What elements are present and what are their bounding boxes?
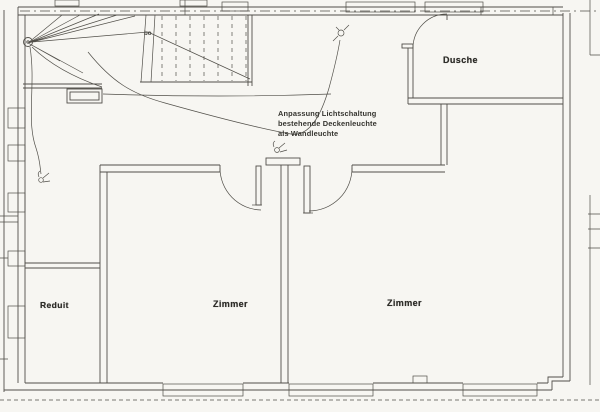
door-zimmer-left xyxy=(220,166,262,210)
stair-right-wall xyxy=(248,15,252,86)
wire-hall xyxy=(103,94,331,96)
stair-label: bo xyxy=(144,30,152,37)
chimney xyxy=(413,376,427,383)
wire-to-wall-switch xyxy=(30,47,41,174)
ceiling-light-icon xyxy=(333,25,349,41)
annotation-line-3: als Wandleuchte xyxy=(278,129,338,138)
stair-walk-line xyxy=(32,32,250,79)
wall-light-icon xyxy=(273,141,287,152)
annotation-line-2: bestehende Deckenleuchte xyxy=(278,119,377,128)
bottom-wall-windows xyxy=(163,376,537,396)
annotation-line-1: Anpassung Lichtschaltung xyxy=(278,109,377,118)
stair-winder-treads xyxy=(28,14,135,73)
switch-light-icon xyxy=(38,171,50,182)
under-stair-wall xyxy=(23,84,102,88)
scanned-floor-plan: Dusche Zimmer Zimmer Reduit Anpassung Li… xyxy=(0,0,600,412)
room-label-zimmer-right: Zimmer xyxy=(387,298,422,308)
staircase xyxy=(23,14,252,103)
room-label-dusche: Dusche xyxy=(443,55,478,65)
floor-plan-drawing: Dusche Zimmer Zimmer Reduit Anpassung Li… xyxy=(0,0,600,412)
room-label-zimmer-left: Zimmer xyxy=(213,299,248,309)
door-dusche xyxy=(413,14,447,48)
top-wall-windows xyxy=(55,0,553,15)
door-zimmer-right xyxy=(303,166,352,213)
room-label-reduit: Reduit xyxy=(40,300,69,310)
left-wall-niches xyxy=(8,108,25,338)
electrical-wiring xyxy=(30,25,349,182)
under-stair-cupboard xyxy=(67,89,102,103)
exterior-walls xyxy=(0,0,600,400)
stair-inner-curve xyxy=(32,47,102,87)
labels: Dusche Zimmer Zimmer Reduit Anpassung Li… xyxy=(40,30,478,310)
